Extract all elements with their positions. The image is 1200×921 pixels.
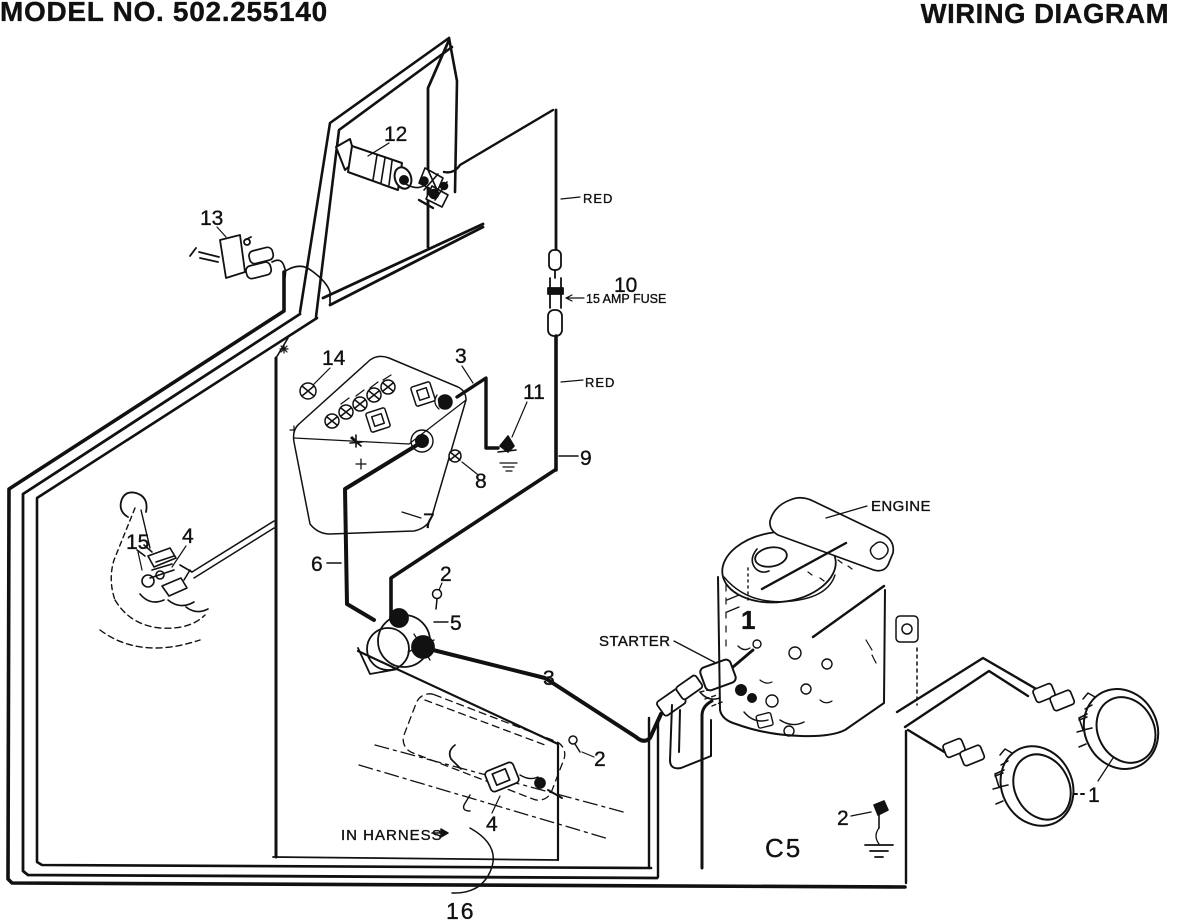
svg-text:16: 16	[446, 898, 476, 921]
svg-text:1: 1	[741, 605, 755, 635]
svg-text:15 AMP FUSE: 15 AMP FUSE	[586, 292, 666, 306]
svg-text:4: 4	[182, 525, 194, 548]
svg-text:15: 15	[126, 531, 149, 554]
svg-text:WIRING DIAGRAM: WIRING DIAGRAM	[921, 0, 1169, 29]
svg-text:RED: RED	[585, 375, 615, 390]
svg-text:C5: C5	[765, 833, 802, 863]
svg-text:6: 6	[311, 553, 323, 576]
svg-text:ENGINE: ENGINE	[871, 498, 931, 515]
svg-text:7: 7	[423, 510, 435, 533]
svg-text:RED: RED	[583, 191, 613, 206]
svg-text:12: 12	[384, 123, 407, 146]
svg-text:4: 4	[486, 813, 498, 836]
svg-text:IN HARNESS: IN HARNESS	[341, 827, 443, 844]
svg-text:13: 13	[200, 207, 223, 230]
svg-text:9: 9	[580, 447, 592, 470]
svg-text:MODEL NO. 502.255140: MODEL NO. 502.255140	[0, 0, 328, 27]
svg-text:3: 3	[455, 345, 467, 368]
svg-text:1: 1	[1088, 784, 1100, 807]
svg-text:3: 3	[543, 667, 555, 690]
svg-text:STARTER: STARTER	[599, 633, 670, 650]
svg-text:14: 14	[322, 347, 346, 370]
svg-text:2: 2	[837, 807, 849, 830]
svg-text:2: 2	[594, 748, 606, 771]
svg-text:5: 5	[450, 612, 462, 635]
svg-text:11: 11	[523, 381, 545, 404]
